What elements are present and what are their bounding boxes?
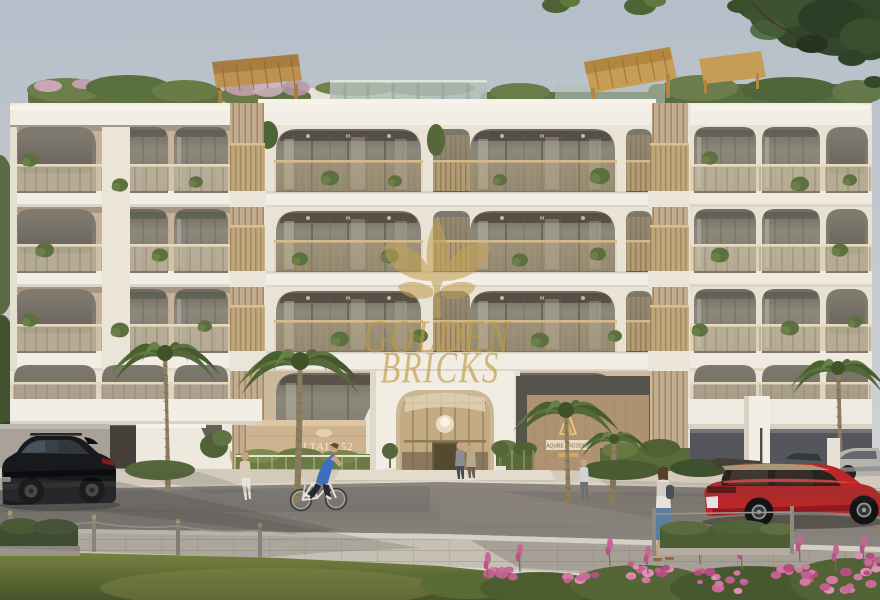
svg-text:BRICKS: BRICKS — [380, 344, 499, 392]
